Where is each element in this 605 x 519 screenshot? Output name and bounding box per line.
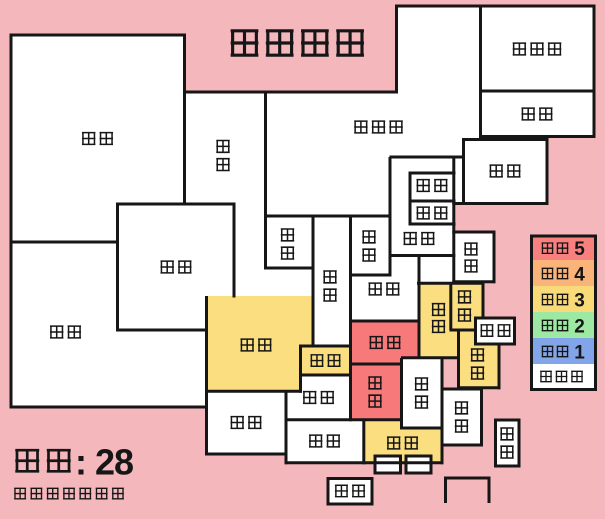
svg-text:5: 5 xyxy=(574,239,585,260)
svg-text:4: 4 xyxy=(574,264,585,285)
svg-text:1: 1 xyxy=(574,342,585,363)
svg-text:2: 2 xyxy=(574,316,585,337)
svg-text:: 28: : 28 xyxy=(75,442,133,483)
svg-text:3: 3 xyxy=(574,290,585,311)
